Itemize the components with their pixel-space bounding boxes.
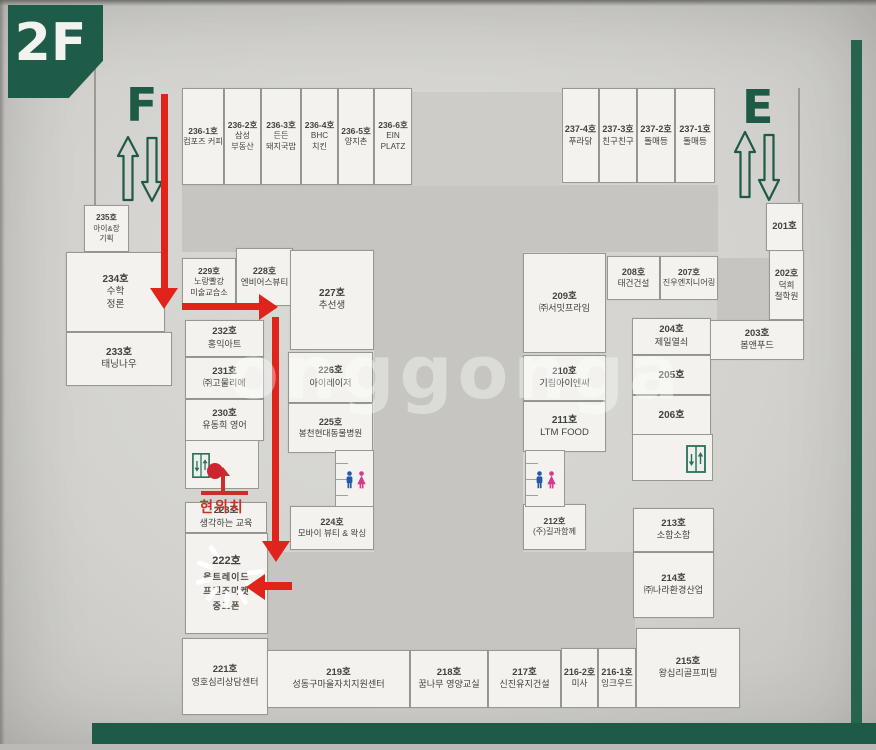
room-227-number: 227호 [319, 287, 345, 300]
room-206-number: 206호 [659, 409, 685, 422]
courtyard-bottom [267, 552, 635, 651]
stairwell-f-label: F [126, 78, 157, 132]
room-235-name-1: 기획 [99, 234, 113, 244]
room-236-4: 236-4호BHC치킨 [301, 88, 338, 185]
current-location-dot [207, 463, 223, 479]
room-233: 233호태닝나우 [66, 332, 172, 386]
room-236-6-number: 236-6호 [378, 120, 408, 131]
courtyard-top-gap [411, 92, 561, 186]
room-213-number: 213호 [661, 518, 686, 530]
room-231: 231호㈜고물리에 [185, 357, 264, 399]
room-237-4: 237-4호푸라닭 [562, 88, 599, 183]
room-214-number: 214호 [661, 573, 686, 585]
restroom-east [525, 450, 565, 507]
restroom-icon [345, 471, 367, 489]
room-237-4-name-0: 푸라닭 [569, 136, 593, 147]
stair-arrows-west [117, 136, 163, 202]
room-236-1: 236-1호컴포즈 커피 [182, 88, 224, 185]
room-237-2-number: 237-2호 [640, 124, 671, 136]
restroom-west [335, 450, 374, 507]
room-229-name-0: 노랑빨강 [194, 277, 224, 288]
current-location-label: 현위치 [190, 496, 254, 517]
room-237-3-name-0: 친구친구 [602, 136, 634, 147]
room-232-number: 232호 [212, 326, 237, 338]
floor-plan-sign: 236-1호컴포즈 커피236-2호삼성부동산236-3호든든돼지국밥236-4… [0, 0, 876, 750]
room-232-name-0: 홍익아트 [208, 339, 242, 351]
room-237-2-name-0: 돌매등 [644, 136, 668, 147]
room-216-1-name-0: 잉크우드 [601, 678, 633, 689]
room-219-number: 219호 [326, 667, 351, 679]
room-230: 230호유동희 영어 [185, 399, 264, 441]
room-231-number: 231호 [212, 366, 237, 378]
room-217-name-0: 신진유지건설 [499, 679, 549, 691]
room-216-1-number: 216-1호 [601, 667, 632, 679]
room-207: 207호진우엔지니어링 [660, 256, 718, 300]
room-209-name-0: ㈜서밋프라임 [539, 303, 590, 315]
room-214: 214호㈜나라환경산업 [633, 552, 714, 618]
room-216-2-name-0: 미사 [572, 678, 588, 689]
room-235-number: 235호 [96, 213, 117, 223]
courtyard-center [374, 252, 523, 553]
wall-line-east [798, 88, 800, 202]
room-233-name-0: 태닝나우 [101, 359, 136, 371]
room-229-name-1: 미술교습소 [190, 288, 228, 299]
room-209-number: 209호 [552, 291, 577, 303]
room-204-name-0: 제일열쇠 [655, 337, 689, 349]
route-arrow-down-1 [150, 288, 178, 309]
room-236-5-number: 236-5호 [341, 126, 371, 137]
room-211-name-0: LTM FOOD [540, 427, 589, 439]
room-224: 224호모바이 뷰티 & 왁싱 [290, 506, 374, 550]
room-236-6: 236-6호EINPLATZ [374, 88, 412, 185]
room-216-1: 216-1호잉크우드 [598, 648, 636, 708]
room-205: 205호 [632, 355, 711, 395]
frame-bottom-edge [0, 744, 876, 750]
room-236-6-name-1: PLATZ [381, 142, 406, 153]
room-218-number: 218호 [437, 667, 462, 679]
room-204: 204호제일열쇠 [632, 318, 711, 355]
room-237-3-number: 237-3호 [602, 124, 633, 136]
stair-arrows-east [734, 131, 780, 201]
room-236-2: 236-2호삼성부동산 [224, 88, 261, 185]
room-236-1-name-0: 컴포즈 커피 [183, 137, 223, 148]
room-237-4-number: 237-4호 [565, 124, 596, 136]
room-210: 210호기림아이엔씨 [523, 355, 606, 401]
room-202-name-1: 철학원 [775, 291, 799, 302]
room-221: 221호영호심리상담센터 [182, 638, 268, 715]
courtyard-right [717, 258, 769, 321]
room-201: 201호 [766, 203, 803, 251]
room-231-name-0: ㈜고물리에 [203, 378, 246, 390]
room-227: 227호추선생 [290, 250, 374, 350]
route-line-vertical-2 [272, 317, 279, 541]
room-202-name-0: 덕희 [779, 280, 795, 291]
room-212-number: 212호 [543, 516, 565, 527]
room-233-number: 233호 [106, 346, 132, 359]
room-224-name-0: 모바이 뷰티 & 왁싱 [298, 528, 367, 539]
room-210-name-0: 기림아이엔씨 [539, 378, 589, 390]
room-229: 229호노랑빨강미술교습소 [182, 258, 236, 306]
floor-badge-label: 2F [15, 13, 87, 73]
room-223-name-0: 생각하는 교육 [200, 518, 253, 530]
room-217-number: 217호 [512, 667, 537, 679]
courtyard-top [182, 185, 718, 252]
room-211: 211호LTM FOOD [523, 401, 606, 452]
room-228-name-0: 엔비어스뷰티 [241, 277, 289, 288]
room-236-3: 236-3호든든돼지국밥 [261, 88, 301, 185]
room-226-number: 226호 [318, 365, 343, 377]
room-225: 225호봉천현대동물병원 [288, 403, 373, 453]
room-203-name-0: 봄앤푸드 [740, 340, 774, 352]
room-209: 209호㈜서밋프라임 [523, 253, 606, 353]
room-236-2-name-0: 삼성 [235, 131, 250, 142]
room-224-number: 224호 [320, 517, 343, 529]
room-230-number: 230호 [212, 408, 237, 420]
room-213-name-0: 소함소함 [657, 530, 691, 542]
room-208-name-0: 태건건설 [618, 278, 650, 289]
floor-badge: 2F [8, 5, 103, 98]
room-221-number: 221호 [213, 664, 238, 676]
room-236-2-number: 236-2호 [228, 120, 258, 131]
route-arrow-left-222 [246, 574, 265, 600]
elevator-east-box [632, 434, 713, 481]
room-236-1-number: 236-1호 [188, 126, 218, 137]
room-215-number: 215호 [676, 656, 701, 668]
room-211-number: 211호 [552, 414, 577, 427]
route-line-horizontal [182, 303, 259, 310]
wall-line-west [94, 58, 96, 206]
frame-left-edge [0, 0, 5, 750]
current-location-arrow-shaft [221, 476, 225, 492]
room-235-name-0: 아이&장 [93, 224, 119, 234]
room-234-name-0: 수학 [107, 286, 125, 298]
route-line-vertical-1 [161, 94, 168, 288]
room-236-3-name-1: 돼지국밥 [266, 142, 296, 153]
room-232: 232호홍익아트 [185, 320, 264, 357]
room-237-1: 237-1호돌매등 [675, 88, 715, 183]
room-205-number: 205호 [659, 369, 685, 382]
room-202: 202호덕희철학원 [769, 250, 804, 320]
route-arrow-right [259, 294, 278, 320]
room-218-name-0: 꿈나무 영양교실 [418, 679, 479, 691]
room-236-4-name-0: BHC [311, 131, 328, 142]
room-207-name-0: 진우엔지니어링 [663, 278, 716, 289]
room-237-1-name-0: 돌매등 [683, 136, 707, 147]
room-226-name-0: 아이레이저 [310, 378, 352, 390]
route-arrow-down-2 [262, 541, 290, 562]
room-236-6-name-0: EIN [386, 131, 400, 142]
room-219-name-0: 성동구마을자치지원센터 [292, 679, 384, 691]
room-236-3-number: 236-3호 [266, 120, 296, 131]
room-230-name-0: 유동희 영어 [202, 420, 246, 432]
room-234-number: 234호 [103, 273, 129, 286]
room-204-number: 204호 [659, 324, 684, 336]
room-202-number: 202호 [775, 268, 798, 280]
room-222-number: 222호 [212, 554, 240, 568]
room-229-number: 229호 [198, 266, 220, 277]
room-236-4-name-1: 치킨 [312, 142, 327, 153]
room-203-number: 203호 [745, 328, 770, 340]
room-237-2: 237-2호돌매등 [637, 88, 675, 183]
room-208: 208호태건건설 [607, 256, 660, 300]
room-206: 206호 [632, 395, 711, 435]
stairwell-e-label: E [742, 80, 773, 134]
room-203: 203호봄앤푸드 [710, 320, 804, 360]
room-219: 219호성동구마을자치지원센터 [267, 650, 410, 708]
room-201-number: 201호 [772, 221, 797, 233]
room-212-name-0: (주)길과함께 [533, 527, 576, 538]
restroom-icon [535, 471, 557, 489]
starburst-ray [196, 577, 214, 586]
room-218: 218호꿈나무 영양교실 [410, 650, 488, 708]
room-237-1-number: 237-1호 [679, 124, 710, 136]
room-235: 235호아이&장기획 [84, 205, 129, 252]
room-236-4-number: 236-4호 [305, 120, 335, 131]
room-217: 217호신진유지건설 [488, 650, 561, 708]
room-216-2: 216-2호미사 [561, 648, 598, 708]
route-line-into-222 [264, 582, 292, 590]
room-226: 226호아이레이저 [288, 352, 373, 403]
frame-bottom-band [92, 723, 876, 744]
room-225-number: 225호 [319, 417, 342, 429]
room-208-number: 208호 [622, 267, 645, 279]
room-228-number: 228호 [253, 266, 276, 278]
room-214-name-0: ㈜나라환경산업 [644, 585, 703, 597]
room-215-name-0: 왕십리골프피팅 [659, 668, 718, 680]
room-225-name-0: 봉천현대동물병원 [299, 428, 362, 439]
room-212: 212호(주)길과함께 [523, 504, 586, 550]
room-207-number: 207호 [678, 267, 700, 278]
room-236-5: 236-5호양지촌 [338, 88, 374, 185]
starburst-ray [196, 560, 214, 570]
room-236-3-name-0: 든든 [273, 131, 288, 142]
room-237-3: 237-3호친구친구 [599, 88, 637, 183]
room-236-2-name-1: 부동산 [231, 142, 254, 153]
room-227-name-0: 추선생 [319, 300, 345, 312]
room-216-2-number: 216-2호 [564, 667, 595, 679]
room-210-number: 210호 [552, 366, 577, 378]
elevator-icon [686, 445, 706, 473]
room-234-name-1: 정론 [107, 299, 125, 311]
room-221-name-0: 영호심리상담센터 [191, 677, 258, 689]
room-213: 213호소함소함 [633, 508, 714, 552]
frame-right-strip [851, 40, 862, 724]
room-236-5-name-0: 양지촌 [345, 137, 368, 148]
room-215: 215호왕십리골프피팅 [636, 628, 740, 708]
frame-top-edge [0, 0, 876, 6]
